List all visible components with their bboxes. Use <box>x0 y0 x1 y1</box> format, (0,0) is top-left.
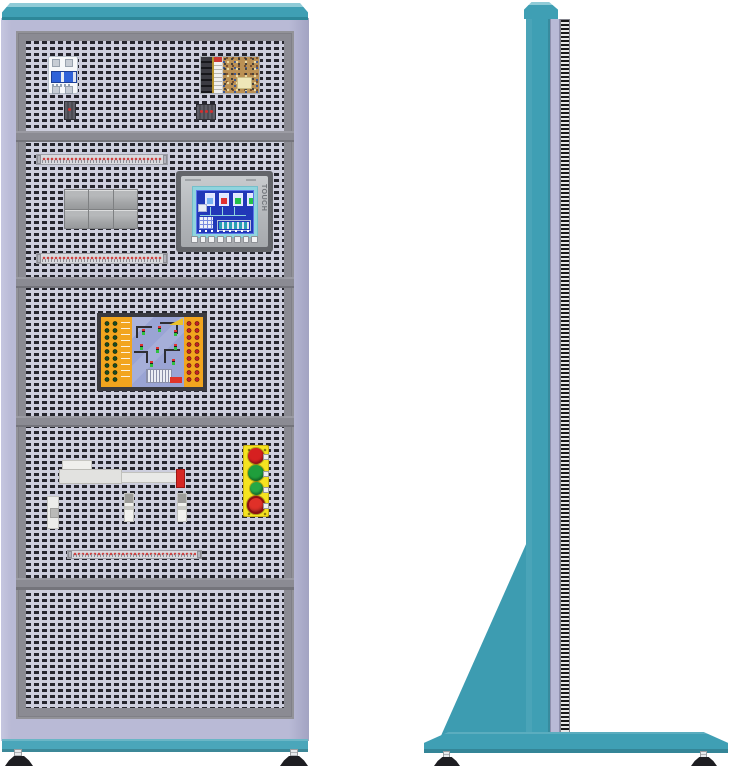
screen-tank-indicator <box>233 193 243 206</box>
hmi-function-key <box>208 236 215 243</box>
support-gusset <box>440 542 527 738</box>
leveling-foot <box>691 757 717 766</box>
relay-module <box>114 190 137 209</box>
push-button <box>248 465 264 481</box>
screen-pipe <box>234 207 235 215</box>
leveling-foot <box>434 757 460 766</box>
breaker-terminal <box>52 59 60 67</box>
psu-label-strip <box>214 57 223 93</box>
hmi-function-key <box>251 236 258 243</box>
relay-module <box>89 190 112 209</box>
emergency-stop-button <box>247 496 265 514</box>
leveling-foot <box>5 756 33 766</box>
cabinet-illustration: TOUCH <box>0 0 730 766</box>
screen-pipe <box>222 207 223 215</box>
mini-terminal-block <box>196 104 216 120</box>
relay-module <box>65 190 88 209</box>
screen-status-dots <box>199 230 249 232</box>
panel-divider <box>16 416 294 427</box>
foot-stem <box>14 749 22 757</box>
side-column <box>526 18 550 738</box>
leveling-foot <box>280 756 308 766</box>
screen-pipe <box>200 215 246 216</box>
terminal-dot-column <box>185 320 201 384</box>
actuator-red-tip <box>176 469 185 488</box>
hmi-model-mark <box>246 179 256 181</box>
breaker-terminal <box>65 59 73 67</box>
hmi-screen <box>196 190 254 234</box>
foot-stem <box>443 751 450 758</box>
inductive-sensor <box>124 493 134 522</box>
screen-table <box>199 217 213 229</box>
perforated-panel-edge <box>560 19 570 737</box>
side-frame-edge <box>550 19 560 737</box>
screen-pipe <box>210 207 211 215</box>
psu-capacitor <box>237 77 252 89</box>
switching-power-supply <box>200 56 260 94</box>
push-button <box>250 482 263 495</box>
foot-stem <box>700 751 707 758</box>
panel-divider <box>16 131 294 142</box>
hmi-function-key <box>200 236 207 243</box>
mini-terminal-block <box>64 101 76 120</box>
proximity-module <box>47 496 59 529</box>
relay-module <box>114 210 137 228</box>
relay-module <box>89 210 112 228</box>
hmi-function-key <box>226 236 233 243</box>
hmi-function-key <box>234 236 241 243</box>
hmi-screen-frame <box>192 186 258 238</box>
inductive-sensor <box>177 493 187 522</box>
relay-module <box>65 210 88 228</box>
terminal-rail <box>36 154 168 165</box>
hmi-function-key <box>217 236 224 243</box>
hmi-function-key <box>243 236 250 243</box>
plc-right-terminal-panel <box>184 317 203 387</box>
actuator-arm <box>121 472 178 483</box>
side-top-cap <box>524 2 558 19</box>
foot-stem <box>290 749 298 757</box>
terminal-rail <box>67 550 202 559</box>
touch-label: TOUCH <box>260 184 267 211</box>
screen-tank-indicator <box>219 193 229 206</box>
plc-red-label <box>170 377 182 383</box>
hmi-touch-panel: TOUCH <box>176 171 273 252</box>
terminal-labels <box>121 322 130 382</box>
linear-actuator <box>59 469 122 484</box>
hmi-function-key <box>191 236 198 243</box>
relay-group <box>64 189 138 229</box>
push-button <box>248 448 264 464</box>
breaker-terminal <box>65 86 73 94</box>
screen-widget <box>198 204 207 212</box>
panel-divider <box>16 578 294 590</box>
breaker-terminal <box>52 86 60 94</box>
breaker-toggle <box>51 71 77 83</box>
hmi-bezel: TOUCH <box>181 176 268 247</box>
terminal-rail <box>36 253 168 264</box>
plc-trainer-module <box>97 313 207 391</box>
screen-tank-indicator <box>247 193 254 206</box>
psu-circuit-board <box>223 57 259 93</box>
psu-terminal-strip <box>201 57 214 93</box>
plc-circuit-board <box>132 317 184 387</box>
front-base-strip <box>2 739 308 752</box>
panel-divider <box>16 277 294 288</box>
plc-left-terminal-panel <box>101 317 132 387</box>
pushbutton-station <box>243 445 269 517</box>
plc-connector-block <box>146 369 172 383</box>
circuit-breaker <box>48 56 78 94</box>
button-column <box>244 448 268 515</box>
hmi-function-keys <box>191 236 258 243</box>
base-plate <box>424 732 728 753</box>
hmi-brand-mark <box>185 179 201 181</box>
terminal-dot-column <box>103 320 119 384</box>
screen-tank-row <box>205 193 254 206</box>
front-top-cap <box>2 3 308 20</box>
